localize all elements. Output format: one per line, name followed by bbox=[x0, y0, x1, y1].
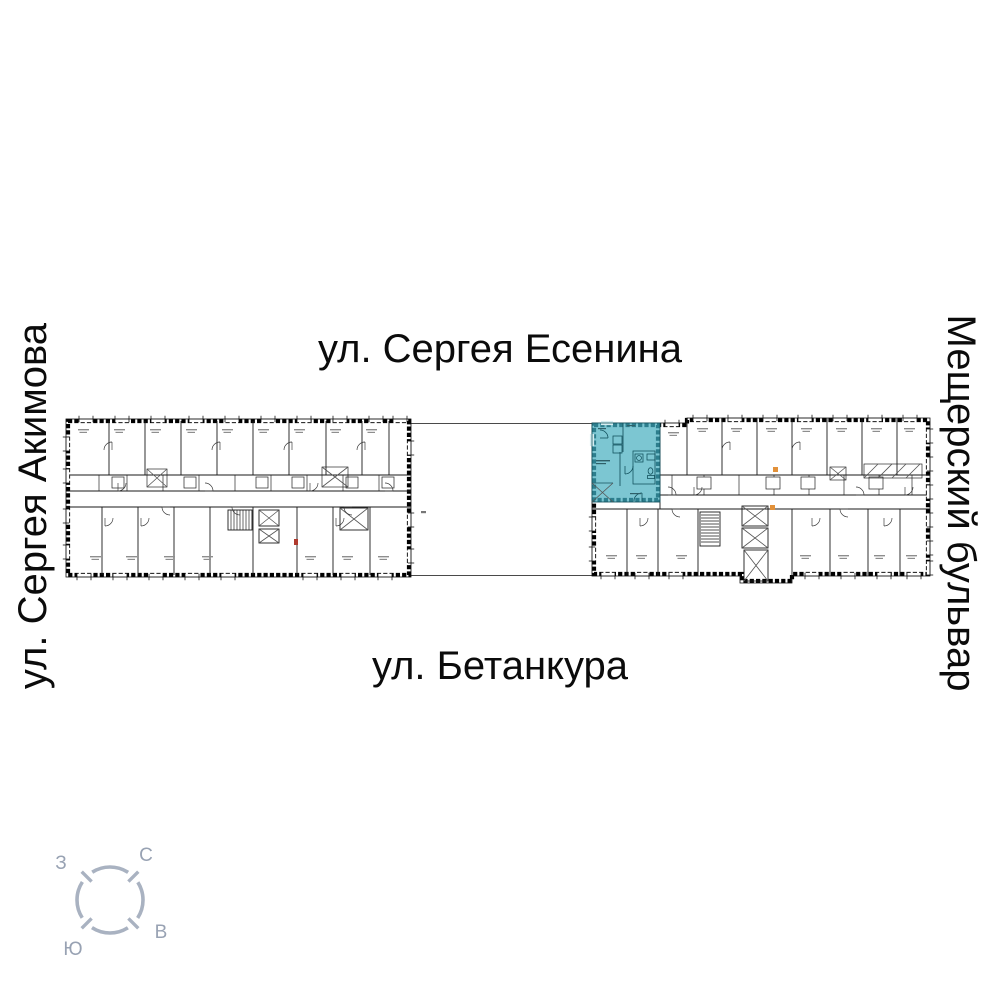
left-wing-shafts bbox=[147, 467, 368, 530]
compass-rose: С З В Ю bbox=[55, 845, 180, 970]
floorplan-page: ул. Сергея Есенина ул. Бетанкура ул. Сер… bbox=[0, 0, 1000, 1000]
left-wing-bathrooms bbox=[112, 477, 394, 488]
compass-south-label: Ю bbox=[63, 939, 82, 960]
right-wing-bathrooms bbox=[697, 477, 883, 489]
compass-circle bbox=[77, 867, 143, 933]
compass-letters: С З В Ю bbox=[55, 845, 167, 960]
courtyard-boundary bbox=[411, 424, 592, 576]
left-wing-windows bbox=[63, 416, 414, 580]
left-building-wing bbox=[63, 416, 414, 580]
left-wing-staircase bbox=[228, 510, 252, 530]
left-wing-entry-marker bbox=[294, 539, 298, 545]
compass-north-label: С bbox=[139, 845, 153, 866]
left-wing-outer-wall bbox=[68, 421, 409, 575]
right-building-wing bbox=[589, 415, 933, 583]
left-wing-elevators bbox=[259, 510, 279, 543]
highlighted-apartment[interactable] bbox=[590, 421, 660, 502]
left-wing-room-labels bbox=[78, 429, 389, 560]
compass-east-label: В bbox=[155, 922, 168, 943]
compass-west-label: З bbox=[55, 853, 66, 874]
right-wing-elevators bbox=[742, 506, 768, 581]
right-wing-staircase bbox=[700, 512, 720, 546]
highlighted-apartment-area[interactable] bbox=[592, 423, 660, 502]
